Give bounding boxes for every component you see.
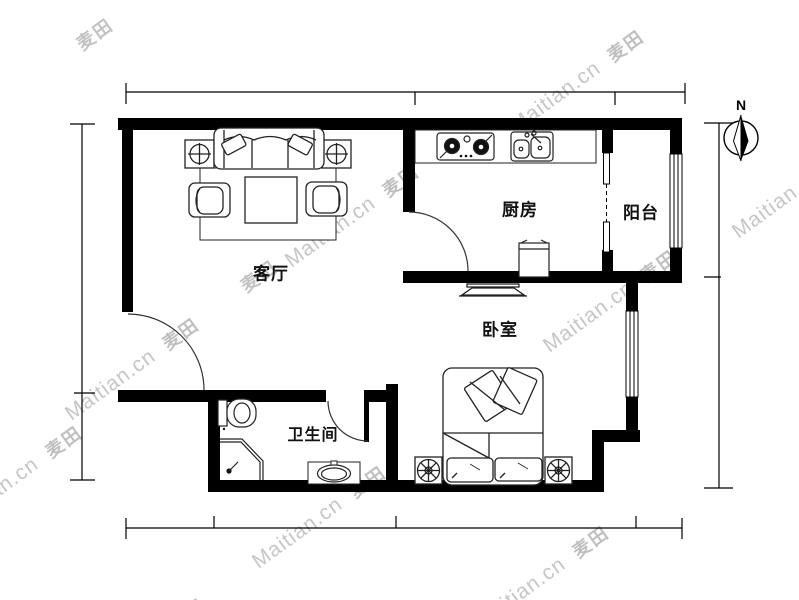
kitchen-door-arc xyxy=(409,212,468,271)
kitchen-label: 厨房 xyxy=(502,196,538,221)
fridge-icon xyxy=(519,240,549,277)
living-room-label: 客厅 xyxy=(253,260,289,285)
bathroom-door-leaf xyxy=(364,402,369,442)
floor-plan-page: Maitian.cn麦田 Maitian.cn麦田 Maitian.cn麦田 M… xyxy=(0,0,799,600)
washbasin-icon xyxy=(308,461,360,484)
bedroom-window xyxy=(626,311,638,397)
dimension-right xyxy=(704,123,733,488)
wall-balcony-divider-upper xyxy=(602,130,613,153)
balcony-window xyxy=(670,154,682,248)
dimension-left xyxy=(70,124,95,480)
coffee-table xyxy=(245,177,297,223)
tv-icon xyxy=(459,284,527,296)
floor-plan-canvas xyxy=(0,0,799,600)
nightstand-right xyxy=(545,457,572,484)
armchair-left xyxy=(189,183,230,217)
dimension-bottom xyxy=(126,516,682,539)
entry-door-arc xyxy=(128,314,204,390)
dimension-top xyxy=(126,83,685,105)
armchair-right xyxy=(306,182,347,216)
shower-icon xyxy=(220,439,263,480)
bathroom-label: 卫生间 xyxy=(287,421,338,445)
living-room-furniture xyxy=(185,128,351,240)
balcony-label: 阳台 xyxy=(623,199,659,224)
doors xyxy=(128,212,468,441)
bed-pillow xyxy=(447,458,493,482)
sink-icon xyxy=(511,131,553,161)
wall-balcony-right-lower xyxy=(670,248,682,283)
nightstand-left xyxy=(415,457,442,484)
wall-balcony-divider-lower xyxy=(602,250,613,272)
wall-bedroom-right-mid xyxy=(626,397,638,442)
bedroom-label: 卧室 xyxy=(482,316,518,341)
wall-left-upper xyxy=(122,130,133,312)
wall-bathroom-top-right xyxy=(364,390,398,402)
toilet-icon xyxy=(218,399,256,430)
wall-top xyxy=(118,118,682,130)
compass xyxy=(724,115,758,161)
wall-kitchen-left xyxy=(403,130,415,212)
wall-left-lower xyxy=(118,390,208,402)
balcony-sliding-door xyxy=(604,153,610,252)
sofa xyxy=(214,128,324,169)
wall-balcony-right-upper xyxy=(670,118,682,154)
north-label: N xyxy=(736,97,746,113)
stove-icon xyxy=(437,133,494,160)
bedroom-furniture xyxy=(415,284,572,485)
bed-pillow xyxy=(495,458,542,481)
wall-bedroom-right-upper xyxy=(626,283,638,311)
